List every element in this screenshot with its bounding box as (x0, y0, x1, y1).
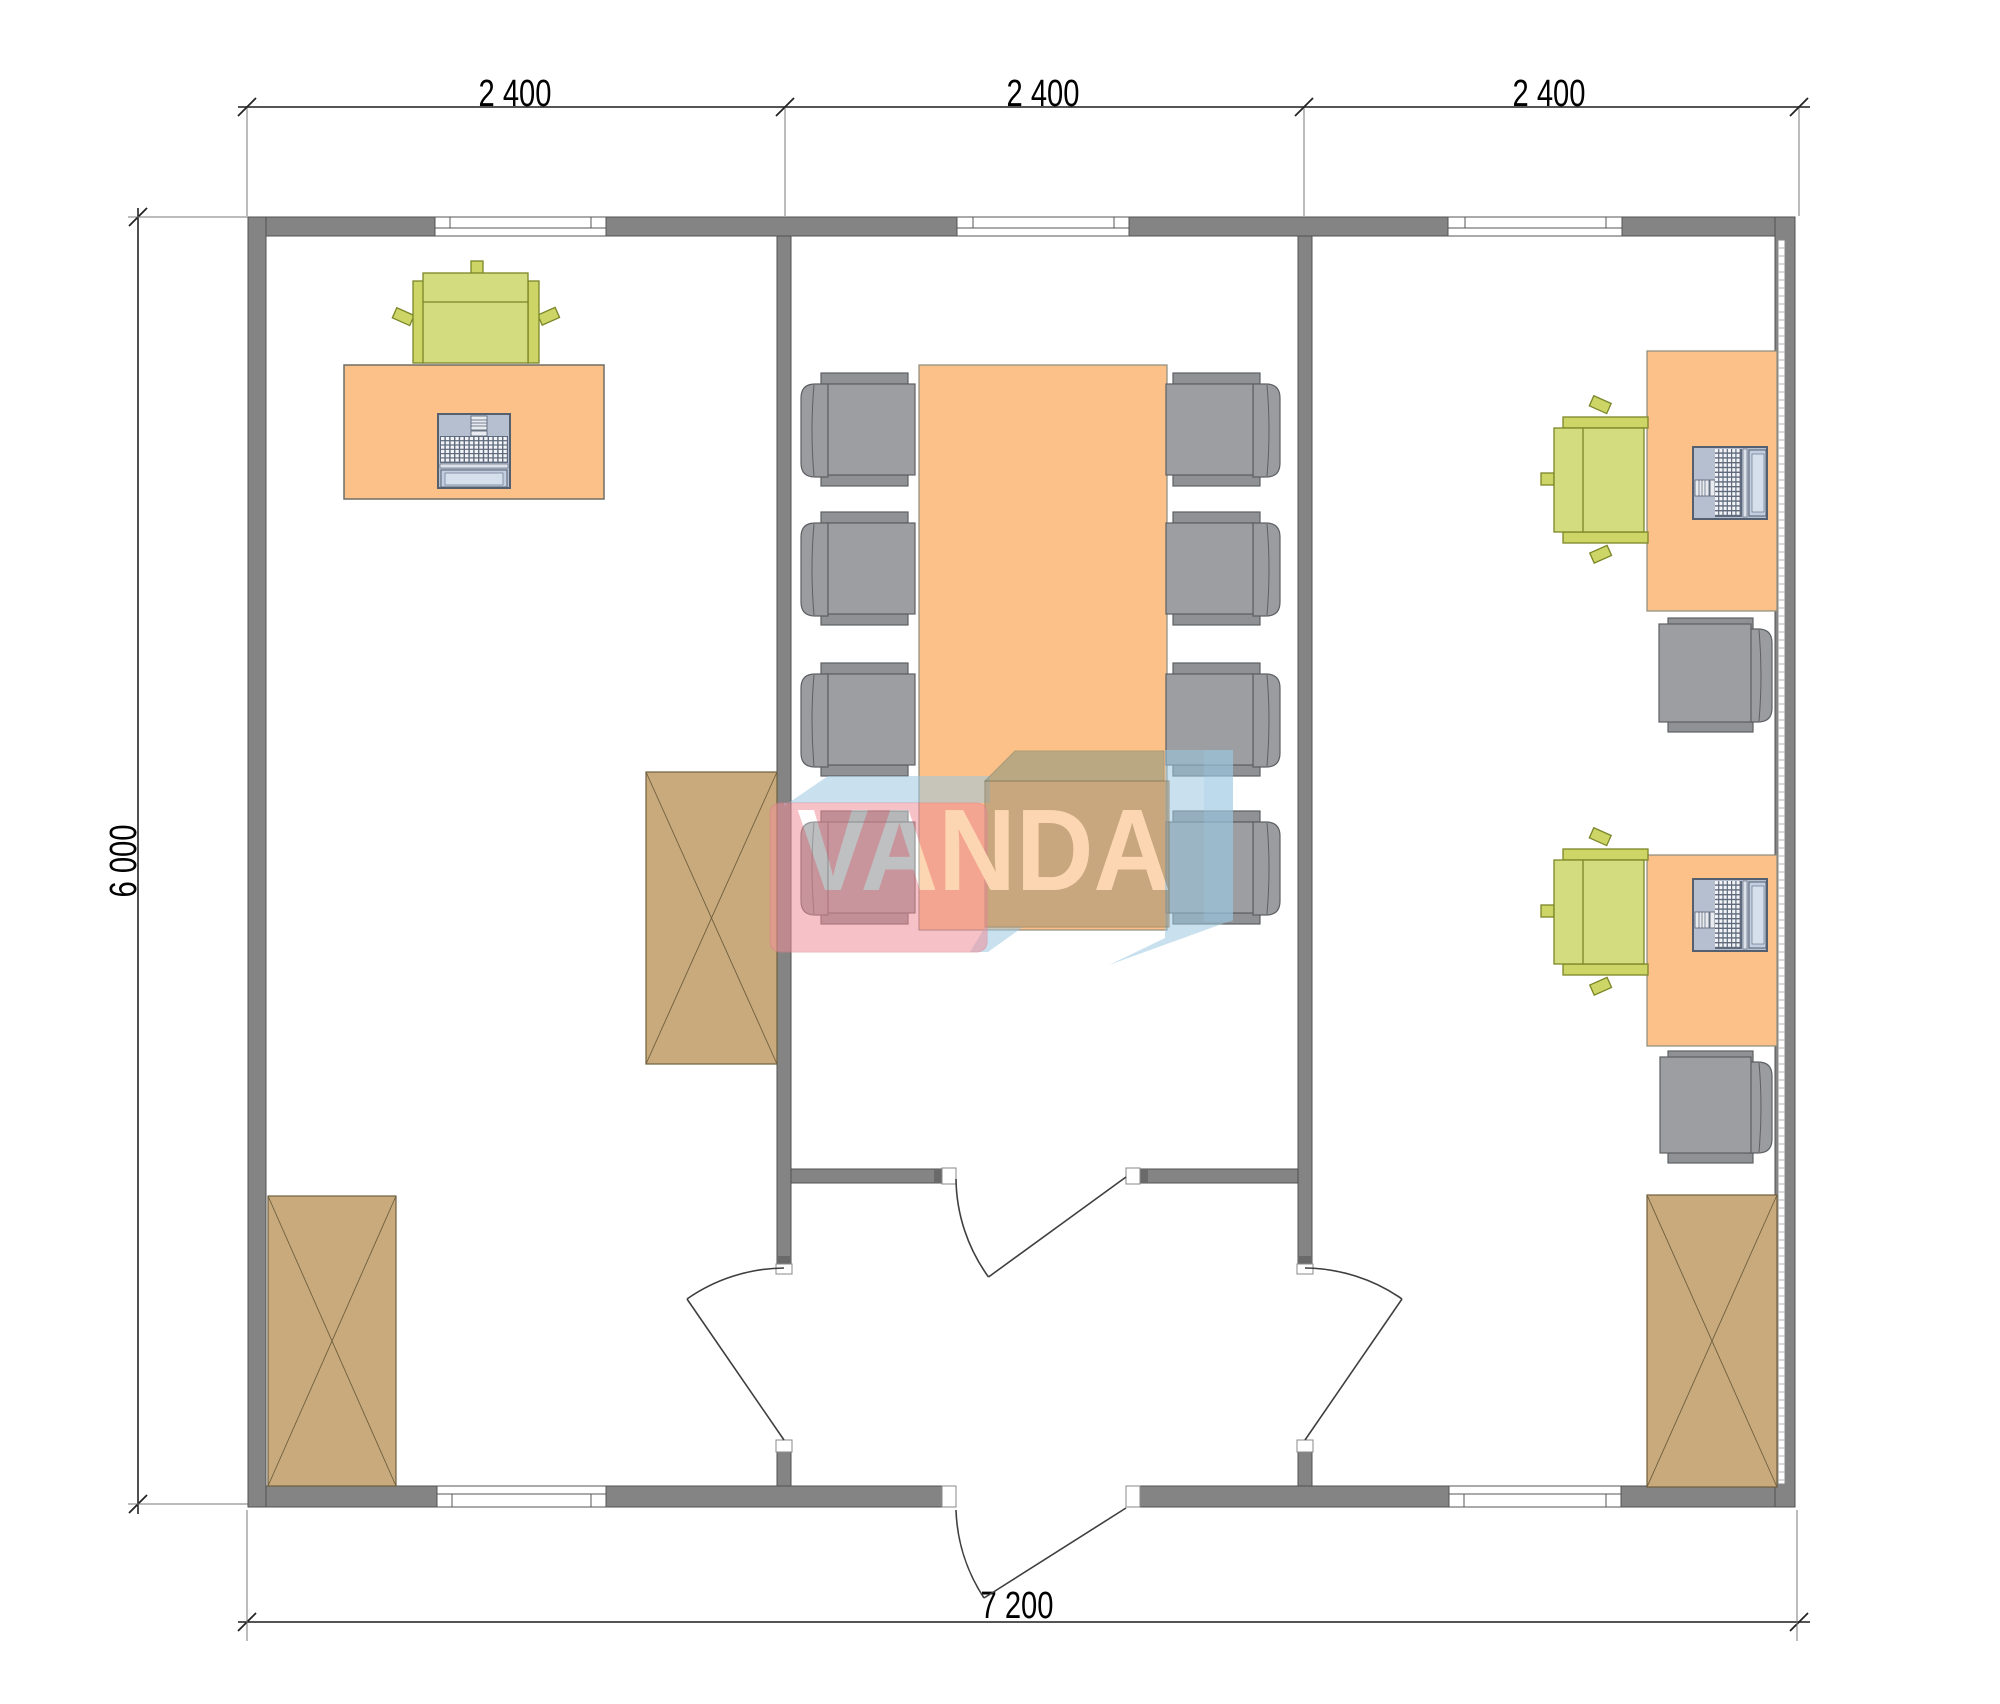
svg-text:6 000: 6 000 (103, 825, 145, 898)
svg-text:VANDA: VANDA (797, 785, 1171, 915)
svg-text:2 400: 2 400 (1513, 73, 1586, 115)
svg-text:2 400: 2 400 (479, 73, 552, 115)
svg-text:7 200: 7 200 (981, 1585, 1054, 1627)
svg-text:2 400: 2 400 (1007, 73, 1080, 115)
